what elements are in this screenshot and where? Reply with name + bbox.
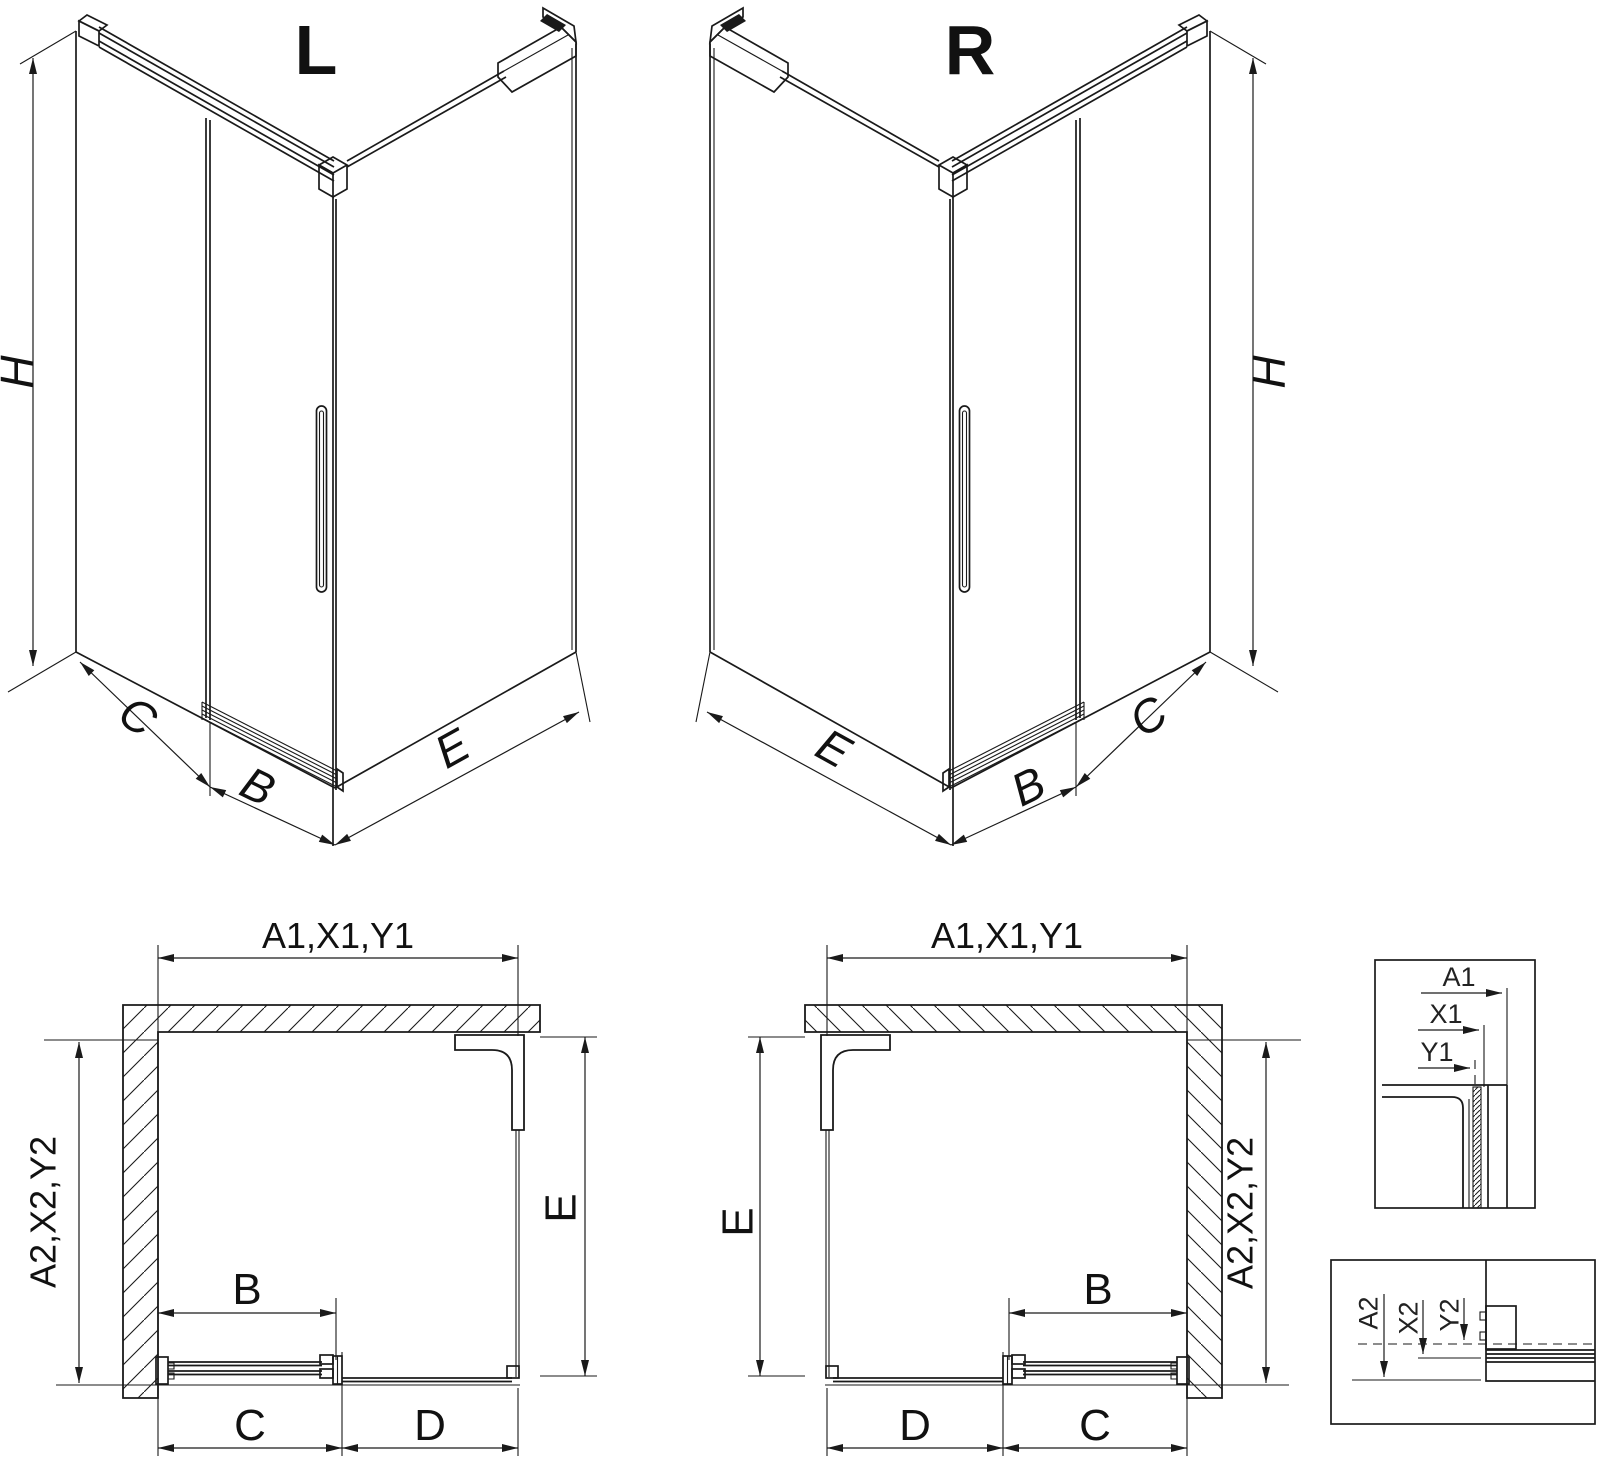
detail-depth-profile [1352, 1306, 1595, 1380]
plan-right-dim-d-label: D [899, 1401, 931, 1450]
detail-y1-label: Y1 [1420, 1037, 1453, 1067]
plan-right-dim-b-label: B [1083, 1265, 1112, 1314]
plan-left-depth-label: A2,X2,Y2 [23, 1136, 64, 1288]
plan-left-width-label: A1,X1,Y1 [262, 915, 414, 956]
iso-left-dim-b-label: B [233, 756, 283, 816]
plan-left-dim-b-label: B [232, 1265, 261, 1314]
detail-x2-label: X2 [1393, 1301, 1423, 1334]
plan-right-width-label: A1,X1,Y1 [931, 915, 1083, 956]
iso-right-dim-h-label: H [1243, 355, 1295, 389]
plan-view-left: A1,X1,Y1 A2,X2,Y2 E B C D [23, 915, 597, 1456]
iso-right-title-label: R [945, 11, 996, 89]
detail-a1-label: A1 [1442, 962, 1475, 992]
iso-left-title-label: L [295, 11, 338, 89]
detail-x1-label: X1 [1429, 999, 1462, 1029]
technical-drawing-page: L H C B E R H E B C A1,X1,Y1 A2,X2,Y2 E … [0, 0, 1600, 1458]
detail-box-width-refs: A1 X1 Y1 [1375, 960, 1535, 1208]
shower-enclosure-drawing: L H C B E R H E B C A1,X1,Y1 A2,X2,Y2 E … [0, 0, 1600, 1458]
iso-right-dim-e-label: E [808, 718, 861, 779]
detail-box-depth-refs: A2 X2 Y2 [1331, 1260, 1595, 1424]
iso-view-right: R H E B C [696, 8, 1295, 846]
plan-view-right: A1,X1,Y1 A2,X2,Y2 E B D C [713, 915, 1301, 1456]
iso-left-dim-e-label: E [426, 717, 479, 778]
plan-right-dim-e-label: E [713, 1207, 762, 1236]
iso-view-left: L H C B E [0, 8, 590, 846]
plan-left-dim-c-label: C [234, 1401, 266, 1450]
plan-right-dim-c-label: C [1079, 1401, 1111, 1450]
plan-left-dim-e-label: E [536, 1193, 585, 1222]
iso-left-dim-h-label: H [0, 355, 43, 389]
iso-right-dim-b-label: B [1003, 756, 1053, 816]
detail-y2-label: Y2 [1434, 1298, 1464, 1331]
plan-left-dim-d-label: D [414, 1401, 446, 1450]
plan-right-depth-label: A2,X2,Y2 [1220, 1137, 1261, 1289]
detail-a2-label: A2 [1353, 1296, 1383, 1329]
